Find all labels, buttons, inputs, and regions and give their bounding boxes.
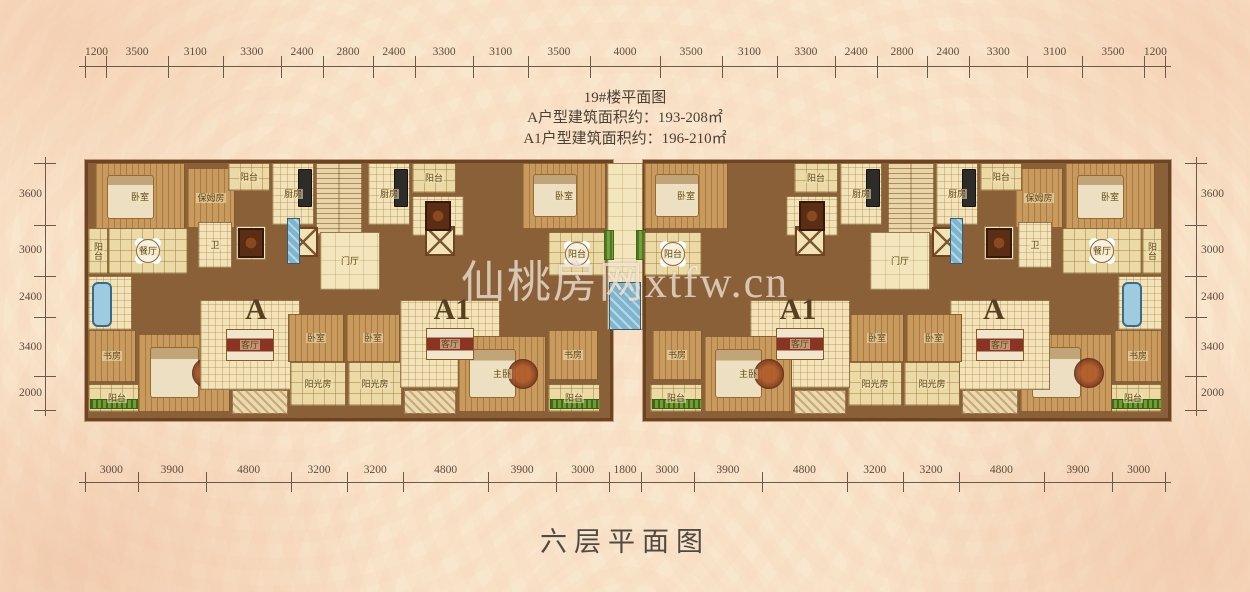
room-label: 保姆房 <box>1024 193 1053 203</box>
room-label: 书房 <box>1128 351 1148 361</box>
room-label: 阳台 <box>107 393 127 403</box>
room-label: 卧室 <box>554 191 574 201</box>
rug-icon <box>508 359 538 389</box>
unit-type-label: A1 <box>780 293 817 327</box>
room-label: 主卧 <box>492 369 512 379</box>
bathroom: 卫 <box>198 222 232 268</box>
study: 书房 <box>548 330 598 380</box>
room-label: 阳台 <box>806 173 826 183</box>
dtable-icon <box>799 201 825 231</box>
room-label: 阳台 <box>239 172 259 182</box>
kitchen: 厨房 <box>272 163 314 225</box>
stair-core <box>316 163 362 235</box>
rug-icon <box>1074 358 1104 388</box>
bedroom: 卧室 <box>850 314 904 362</box>
room-label: 卧室 <box>130 192 150 202</box>
balcony: 阳台 <box>980 163 1022 191</box>
room-label: 餐厅 <box>138 246 158 256</box>
sunroom: 阳光房 <box>290 362 346 406</box>
dining-nook <box>984 226 1014 260</box>
room-label: 卧室 <box>306 333 326 343</box>
room-label: 阳光房 <box>917 379 946 389</box>
dtable-icon <box>238 228 264 258</box>
room-label: 厨房 <box>283 189 303 199</box>
balcony: 阳台 <box>644 232 702 276</box>
room-label: 书房 <box>563 350 583 360</box>
unit-type-label: A1 <box>434 293 471 327</box>
glass-window <box>950 218 963 264</box>
stair-core <box>888 163 934 235</box>
room-label: 餐厅 <box>1092 246 1112 256</box>
balcony: 阳台 <box>88 228 108 274</box>
balcony: 阳台 <box>412 163 456 193</box>
dining-room: 餐厅 <box>108 228 188 274</box>
nanny-room: 保姆房 <box>1015 168 1063 228</box>
room-label: 卧室 <box>1100 192 1120 202</box>
kitchen: 厨房 <box>368 163 410 225</box>
sunroom: 阳光房 <box>904 362 960 406</box>
room-label: 阳光房 <box>303 379 332 389</box>
study: 书房 <box>652 330 702 380</box>
glass-window <box>609 282 641 330</box>
bedroom: 卧室 <box>522 163 606 229</box>
terrace-hatch <box>232 390 288 414</box>
room-label: 阳光房 <box>360 379 389 389</box>
room-label: 客厅 <box>240 340 260 350</box>
floor-plan: 卧室保姆房阳台厨房门厅阳台餐厅卫书房阳台客厅卧室阳光房阳光房卧室厨房阳台客厅主卧… <box>0 0 1250 592</box>
kitchen: 厨房 <box>936 163 978 225</box>
room-label: 卧室 <box>867 333 887 343</box>
room-label: 卫 <box>209 240 220 250</box>
room-label: 客厅 <box>990 340 1010 350</box>
room-label: 卧室 <box>924 333 944 343</box>
kitchen: 厨房 <box>840 163 882 225</box>
balcony: 阳台 <box>794 163 838 193</box>
sunroom: 阳光房 <box>848 362 902 406</box>
balcony: 阳台 <box>1142 228 1162 274</box>
room-label: 阳台 <box>424 173 444 183</box>
bedroom: 卧室 <box>346 314 400 362</box>
terrace-hatch <box>962 390 1018 414</box>
foyer: 门厅 <box>870 232 930 290</box>
room-label: 书房 <box>102 351 122 361</box>
room-label: 厨房 <box>379 189 399 199</box>
bedroom: 卧室 <box>1065 163 1155 231</box>
room-label: 阳台 <box>1146 242 1158 260</box>
stove-icon <box>394 169 408 207</box>
stove-icon <box>866 169 880 207</box>
room-label: 阳台 <box>666 393 686 403</box>
room-label: 客厅 <box>440 339 460 349</box>
bathroom <box>786 196 838 236</box>
room-label: 阳台 <box>991 172 1011 182</box>
balcony: 阳台 <box>548 232 606 276</box>
sunroom: 阳光房 <box>348 362 402 406</box>
room-label: 阳台 <box>663 249 683 259</box>
dtable-icon <box>986 228 1012 258</box>
stove-icon <box>298 169 312 207</box>
balcony: 阳台 <box>228 163 270 191</box>
glass-window <box>287 218 300 264</box>
terrace-hatch <box>404 390 456 414</box>
bedroom: 卧室 <box>288 314 344 362</box>
room-label: 门厅 <box>340 256 360 266</box>
bathroom <box>88 276 132 330</box>
bedroom: 卧室 <box>95 163 185 231</box>
room-label: 卧室 <box>363 333 383 343</box>
room-label: 阳台 <box>567 249 587 259</box>
bathroom: 卫 <box>1018 222 1052 268</box>
room-label: 阳台 <box>1123 393 1143 403</box>
terrace-hatch <box>794 390 846 414</box>
room-label: 书房 <box>667 350 687 360</box>
bedroom: 卧室 <box>906 314 962 362</box>
balcony: 阳台 <box>548 384 600 412</box>
stove-icon <box>962 169 976 207</box>
tub-icon <box>1122 282 1142 327</box>
room-label: 阳光房 <box>860 379 889 389</box>
room-label: 厨房 <box>947 189 967 199</box>
room-label: 卫 <box>1029 240 1040 250</box>
tub-icon <box>92 282 112 327</box>
foyer: 门厅 <box>320 232 380 290</box>
room-label: 阳台 <box>92 242 104 260</box>
study: 书房 <box>1114 330 1162 382</box>
room-label: 阳台 <box>564 393 584 403</box>
dining-room: 餐厅 <box>1062 228 1142 274</box>
balcony: 阳台 <box>1104 384 1162 412</box>
unit-type-label: A <box>245 293 267 327</box>
dtable-icon <box>425 201 451 231</box>
planter <box>604 230 614 260</box>
dining-nook <box>236 226 266 260</box>
bathroom <box>1118 276 1162 330</box>
floor-caption: 六层平面图 <box>0 520 1250 559</box>
room-label: 主卧 <box>738 369 758 379</box>
unit-type-label: A <box>983 293 1005 327</box>
rug-icon <box>754 359 784 389</box>
room-label: 厨房 <box>851 189 871 199</box>
bathroom <box>412 196 464 236</box>
room-label: 门厅 <box>890 256 910 266</box>
room-label: 保姆房 <box>196 193 225 203</box>
room-label: 卧室 <box>676 191 696 201</box>
balcony: 阳台 <box>650 384 702 412</box>
study: 书房 <box>88 330 136 382</box>
room-label: 客厅 <box>790 339 810 349</box>
bedroom: 卧室 <box>644 163 728 229</box>
floorplan-page: 1200350031003300240028002400330031003500… <box>0 0 1250 592</box>
